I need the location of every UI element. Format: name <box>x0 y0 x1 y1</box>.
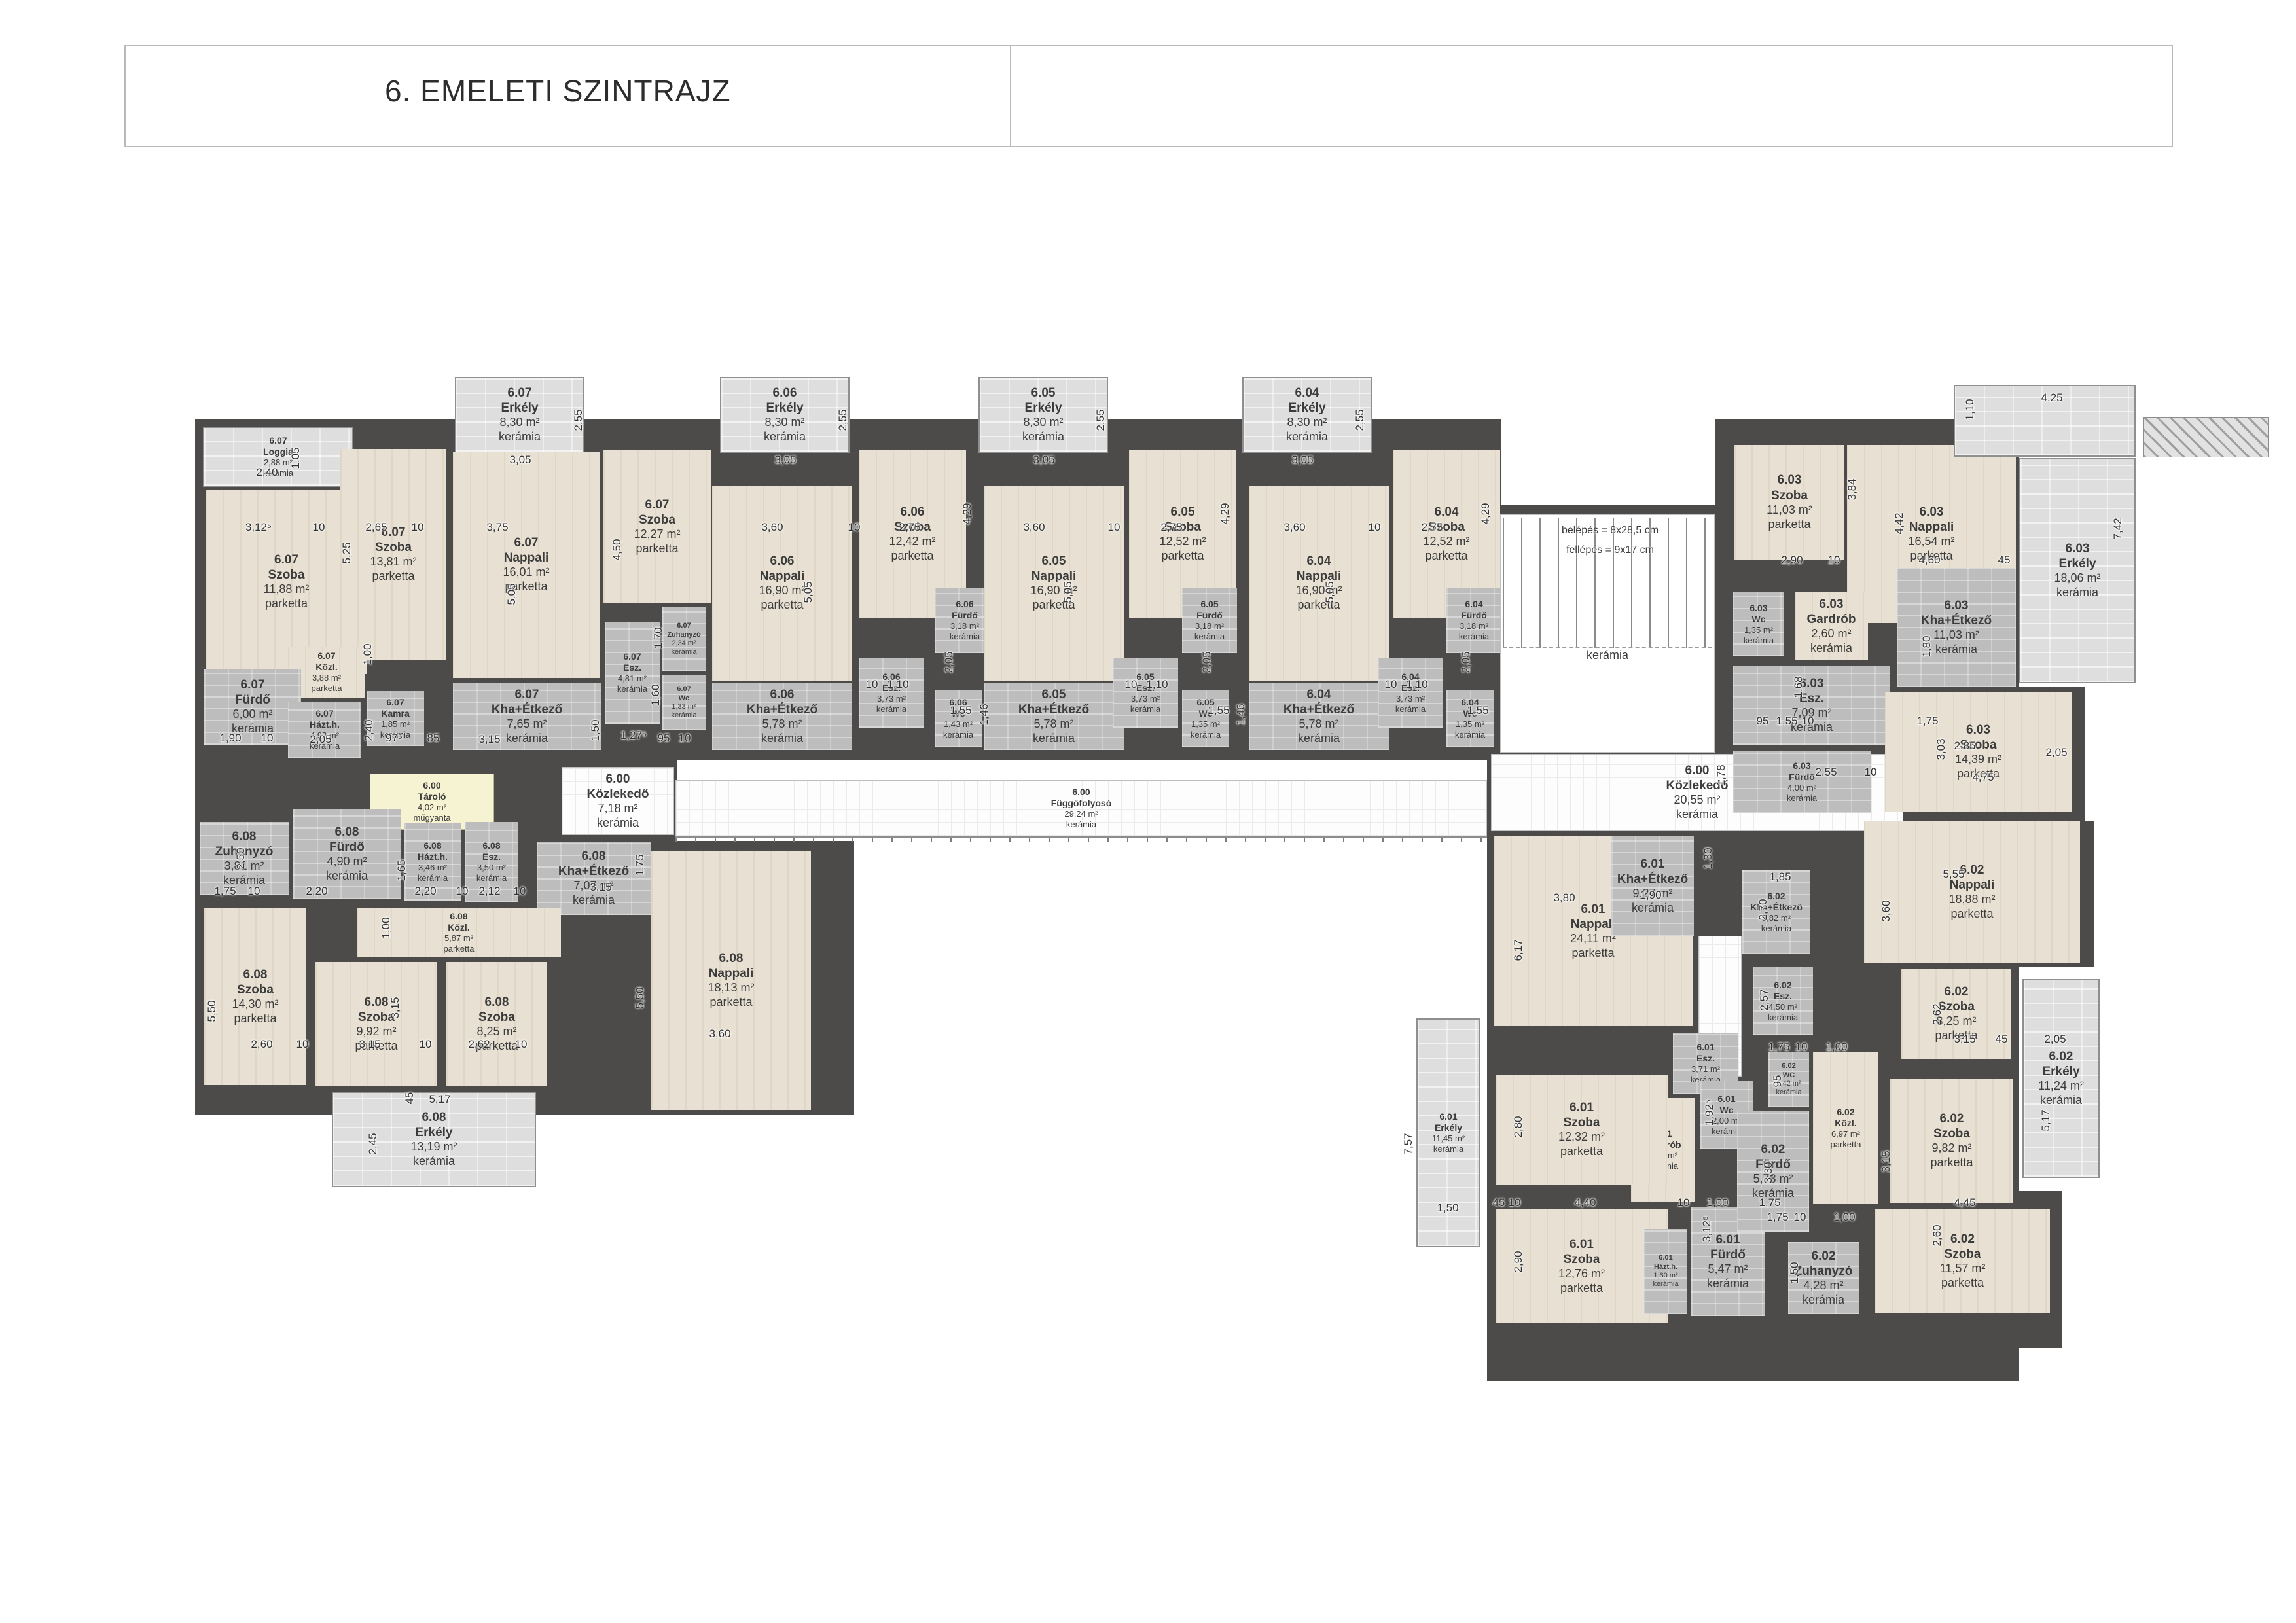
dim-label: 2,05 <box>942 651 956 673</box>
room-label-n: Kamra <box>381 708 410 719</box>
room-label-u: 6.08 <box>243 967 268 982</box>
dim-label: 10 <box>1865 766 1877 779</box>
dim-label: 4,42 <box>1893 512 1906 534</box>
room-label-a: 5,78 m² <box>762 717 802 732</box>
dim-label: 1,92⁵ <box>1703 1099 1716 1126</box>
room-6.04-wc: 6.04Wc1,35 m²kerámia <box>1446 690 1494 747</box>
room-label-a: 16,54 m² <box>1908 535 1954 549</box>
room-label-f: kerámia <box>1455 730 1485 740</box>
room-label-u: 6.01 <box>1570 1237 1594 1252</box>
dim-label: 1,55 <box>1467 704 1488 717</box>
room-label-a: 3,73 m² <box>1396 694 1425 704</box>
room-label-n: Kha+Étkező <box>1921 613 1992 628</box>
dim-label: 1,10 <box>887 678 908 691</box>
room-label-n: WC <box>1783 1071 1795 1080</box>
room-6.07-loggia: 6.07Loggia2,88 m²kerámia <box>203 427 353 487</box>
room-label-n: Tároló <box>418 791 446 802</box>
dim-label: 7,57 <box>1402 1133 1415 1154</box>
room-label-f: kerámia <box>671 711 696 720</box>
room-6.03-erk-ly: 6.03Erkély18,06 m²kerámia <box>2019 458 2136 683</box>
room-label-a: 5,78 m² <box>1299 717 1338 732</box>
room-6.07-kha+-tkez-: 6.07Kha+Étkező7,65 m²kerámia <box>453 683 601 750</box>
room-label-a: 12,52 m² <box>1159 535 1206 549</box>
dim-label: 10 <box>1677 1196 1690 1209</box>
room-6.07-nappali: 6.07Nappali16,01 m²parketta <box>453 452 600 678</box>
room-label-n: Fürdő <box>329 840 365 855</box>
dim-label: 10 <box>296 1038 309 1051</box>
room-label-n: Közl. <box>315 662 337 673</box>
room-label-a: 7,65 m² <box>507 717 547 732</box>
room-label-u: 6.08 <box>365 995 389 1010</box>
dim-label: 2,55 <box>1815 766 1837 779</box>
room-label-f: kerámia <box>761 732 803 746</box>
dim-label: 10 <box>1802 715 1814 728</box>
dim-label: 1,50 <box>589 719 602 741</box>
room-label-f: kerámia <box>418 873 448 883</box>
dim-label: 10 <box>514 885 526 898</box>
dim-label: 1,90 <box>219 732 241 745</box>
dim-label: 2,05 <box>1200 651 1213 673</box>
room-label-a: 8,25 m² <box>476 1025 516 1039</box>
room-6.00-f-gg-folyos-: 6.00Függőfolyosó29,24 m²kerámia <box>675 780 1487 836</box>
room-label-a: 2,60 m² <box>1811 627 1851 641</box>
room-6.08-nappali: 6.08Nappali18,13 m²parketta <box>651 851 811 1110</box>
dim-label: 10 <box>412 521 424 534</box>
room-label-n: Közlekedő <box>586 787 649 802</box>
room-label-f: kerámia <box>943 730 973 740</box>
room-label-a: 1,35 m² <box>1191 719 1220 730</box>
dim-label: 10 <box>1795 1041 1808 1054</box>
room-label-a: 8,30 m² <box>1287 416 1327 430</box>
room-label-a: 29,24 m² <box>1064 809 1098 819</box>
stair-entry-note: belépés = 8x28,5 cm <box>1511 525 1710 537</box>
room-6.04-kha+-tkez-: 6.04Kha+Étkező5,78 m²kerámia <box>1249 683 1389 750</box>
dim-label: 1,70 <box>652 627 665 649</box>
room-label-u: 6.01 <box>1570 1100 1594 1115</box>
dim-label: 2,60 <box>1931 1224 1944 1246</box>
dim-label: 3,60 <box>1283 521 1305 534</box>
room-6.05-kha+-tkez-: 6.05Kha+Étkező5,78 m²kerámia <box>984 683 1124 750</box>
dim-label: 2,12 <box>478 885 500 898</box>
room-label-u: 6.08 <box>719 951 744 966</box>
room-6.03-szoba: 6.03Szoba14,39 m²parketta <box>1885 692 2072 811</box>
dim-label: 4,75 <box>1972 771 1994 784</box>
room-label-f: kerámia <box>1298 732 1340 746</box>
dim-label: 45 <box>1996 1033 2008 1046</box>
dim-label: 2,55 <box>836 409 850 431</box>
dim-label: 1,00 <box>361 643 374 665</box>
room-label-a: 1,35 m² <box>1744 625 1773 635</box>
dim-label: 1,46 <box>978 704 991 725</box>
room-label-a: 1,33 m² <box>672 703 696 711</box>
dim-label: 1,78 <box>1715 764 1728 786</box>
room-label-f: kerámia <box>499 430 541 444</box>
dim-label: 4,29 <box>1219 503 1232 524</box>
room-6.05-erk-ly: 6.05Erkély8,30 m²kerámia <box>978 377 1108 453</box>
room-label-f: kerámia <box>1653 1280 1678 1289</box>
room-label-u: 6.02 <box>1940 1111 1964 1126</box>
room-label-a: 13,19 m² <box>410 1140 457 1154</box>
room-label-u: 6.04 <box>1307 687 1331 702</box>
room-label-f: kerámia <box>1787 793 1817 804</box>
dim-label: 1,10 <box>1406 678 1427 691</box>
stair-rise-note: fellépés = 9x17 cm <box>1511 544 1710 556</box>
room-label-u: 6.07 <box>241 677 265 692</box>
room-6.04-nappali: 6.04Nappali16,90 m²parketta <box>1249 486 1389 681</box>
dim-label: 5,05 <box>505 583 518 605</box>
dim-label: 3,03 <box>1935 738 1948 760</box>
room-label-n: Kha+Étkező <box>1018 702 1089 717</box>
floor-plan-canvas: 6. EMELETI SZINTRAJZ 6.07Loggia2,88 m²ke… <box>0 0 2296 1623</box>
room-label-n: Erkély <box>2042 1064 2079 1079</box>
room-label-u: 6.05 <box>1042 687 1066 702</box>
room-label-f: parketta <box>1930 1156 1973 1170</box>
dim-label: 1,75 <box>214 885 236 898</box>
room-label-a: 3,18 m² <box>950 621 979 632</box>
room-label-f: parketta <box>1571 946 1614 961</box>
room-label-u: 6.07 <box>645 497 670 512</box>
room-label-a: 3,18 m² <box>1195 621 1224 632</box>
room-label-f: kerámia <box>1803 1293 1844 1308</box>
room-label-a: 12,52 m² <box>1423 535 1469 549</box>
room-label-f: parketta <box>891 549 933 563</box>
header-bottom-line <box>124 146 2172 147</box>
room-label-f: parketta <box>636 542 678 556</box>
room-6.05-f-rd-: 6.05Fürdő3,18 m²kerámia <box>1182 588 1237 653</box>
dim-label: 2,62 <box>468 1038 490 1051</box>
dim-label: 4,60 <box>1918 554 1940 567</box>
header-left-line <box>124 45 126 147</box>
dim-label: 10 <box>1509 1196 1521 1209</box>
room-6.02-szoba: 6.02Szoba9,82 m²parketta <box>1890 1079 2013 1203</box>
room-label-u: 6.01 <box>1439 1111 1457 1122</box>
room-6.01-kha+-tkez-: 6.01Kha+Étkező9,27 m²kerámia <box>1611 836 1694 936</box>
dim-label: 3,80 <box>1553 891 1575 904</box>
room-label-u: 6.07 <box>515 687 539 702</box>
room-label-f: parketta <box>1941 1276 1984 1291</box>
dim-label: 45 <box>403 1092 416 1105</box>
room-label-n: Erkély <box>1435 1122 1462 1133</box>
dim-label: 1,10 <box>1146 678 1168 691</box>
room-label-a: 3,73 m² <box>1131 694 1160 704</box>
room-label-a: 8,30 m² <box>499 416 539 430</box>
room-label-u: 6.07 <box>514 535 539 550</box>
room-label-n: Erkély <box>415 1125 452 1140</box>
room-6.08-szoba: 6.08Szoba9,92 m²parketta <box>315 962 437 1086</box>
room-label-u: 6.08 <box>450 911 467 922</box>
dim-label: 2,75 <box>899 521 920 534</box>
dim-label: 1,75 <box>1767 1211 1788 1224</box>
dim-label: 1,46 <box>1234 704 1247 725</box>
room-label-n: Nappali <box>1571 917 1616 932</box>
dim-label: 10 <box>248 885 260 898</box>
room-label-n: Nappali <box>760 569 805 584</box>
room-label-n: Függőfolyosó <box>1051 798 1112 809</box>
room-label-u: 6.02 <box>1774 980 1791 991</box>
dim-label: 10 <box>420 1038 432 1051</box>
room-label-a: 5,87 m² <box>444 933 473 944</box>
room-label-f: parketta <box>265 597 308 611</box>
dim-label: 5,05 <box>1323 581 1336 603</box>
room-label-n: Gardrób <box>1807 612 1856 627</box>
room-label-f: kerámia <box>1761 923 1791 934</box>
room-6.03-esz.: 6.03Esz.7,09 m²kerámia <box>1733 666 1890 745</box>
room-label-f: kerámia <box>2040 1094 2082 1108</box>
dim-label: 10 <box>848 521 861 534</box>
room-label-a: 2,34 m² <box>672 639 696 648</box>
dim-label: 3,05 <box>774 454 796 467</box>
room-label-f: kerámia <box>1033 732 1075 746</box>
dim-label: 3,15 <box>359 1038 380 1051</box>
room-label-a: 18,13 m² <box>708 981 754 995</box>
room-label-n: Kha+Étkező <box>1283 702 1354 717</box>
room-label-a: 3,73 m² <box>877 694 906 704</box>
room-label-u: 6.01 <box>1659 1254 1672 1262</box>
room-label-f: kerámia <box>1286 430 1328 444</box>
room-label-a: 16,01 m² <box>503 565 549 580</box>
room-label-a: 9,92 m² <box>356 1025 396 1039</box>
room-6.07-h-zt.h.: 6.07Házt.h.4,92 m²kerámia <box>288 702 361 758</box>
dim-label: 4,25 <box>2041 391 2062 404</box>
dim-label: 2,40 <box>256 466 278 479</box>
room-label-n: Erkély <box>1024 401 1062 416</box>
room-label-a: 4,28 m² <box>1803 1279 1843 1293</box>
room-label-a: 11,03 m² <box>1767 503 1812 518</box>
room-label-a: 3,88 m² <box>312 673 341 683</box>
room-label-n: Fürdő <box>1710 1247 1746 1262</box>
dim-label: 10 <box>515 1038 528 1051</box>
room-label-a: 7,18 m² <box>598 802 637 816</box>
dim-label: 1,65 <box>395 859 408 881</box>
dim-label: 1,85 <box>1769 870 1791 883</box>
room-label-f: kerámia <box>764 430 806 444</box>
dim-label: 2,55 <box>572 409 585 431</box>
room-label-u: 6.03 <box>1778 473 1802 488</box>
room-6.07-erk-ly: 6.07Erkély8,30 m²kerámia <box>455 377 584 453</box>
room-label-u: 6.01 <box>1717 1094 1735 1105</box>
room-label-u: 6.08 <box>232 829 257 844</box>
room-label-n: Fürdő <box>1461 610 1487 621</box>
room-label-n: Fürdő <box>235 692 270 707</box>
dim-label: 1,75 <box>1768 1041 1789 1054</box>
dim-label: 2,45 <box>367 1133 380 1154</box>
dim-label: 1,90 <box>1640 889 1661 902</box>
room-label-u: 6.02 <box>1945 984 1969 999</box>
room-label-f: kerámia <box>1433 1144 1463 1154</box>
dim-label: 95 <box>1757 715 1769 728</box>
room-label-u: 6.06 <box>770 554 795 569</box>
room-label-u: 6.01 <box>1581 902 1605 917</box>
dim-label: 2,40 <box>363 719 376 741</box>
dim-label: 3,15 <box>1880 1150 1893 1172</box>
room-label-n: Szoba <box>237 982 274 997</box>
room-label-f: parketta <box>1560 1145 1603 1159</box>
room-label-n: Nappali <box>709 966 754 981</box>
room-label-f: kerámia <box>1707 1277 1749 1291</box>
room-label-f: parketta <box>709 995 752 1010</box>
room-6.00-k-zleked-: 6.00Közlekedő7,18 m²kerámia <box>562 767 674 835</box>
room-label-n: Közl. <box>1835 1118 1856 1129</box>
room-label-n: Esz. <box>623 662 641 673</box>
room-6.08-szoba: 6.08Szoba14,30 m²parketta <box>204 908 306 1085</box>
room-label-a: 8,30 m² <box>1023 416 1063 430</box>
room-label-a: 1,35 m² <box>1456 719 1484 730</box>
room-label-u: 6.04 <box>1465 599 1482 610</box>
room-label-u: 6.07 <box>269 435 287 446</box>
room-label-u: 6.02 <box>1782 1062 1795 1071</box>
room-label-u: 6.07 <box>508 385 532 401</box>
room-label-f: parketta <box>1161 549 1204 563</box>
room-label-a: 11,88 m² <box>264 582 310 597</box>
dim-label: 2,05 <box>310 733 331 746</box>
dim-label: 45 <box>1998 554 2011 567</box>
dim-label: 10 <box>313 521 325 534</box>
dim-label: 1,68 <box>1792 676 1805 698</box>
room-label-f: kerámia <box>1130 704 1160 715</box>
room-label-n: Kha+Étkező <box>492 702 562 717</box>
dim-label: 2,57 <box>1758 989 1771 1010</box>
dim-label: 1,00 <box>1833 1211 1855 1224</box>
room-6.07-f-rd-: 6.07Fürdő6,00 m²kerámia <box>204 669 301 745</box>
room-label-u: 6.03 <box>1945 598 1969 613</box>
room-label-n: Fürdő <box>1789 772 1815 783</box>
room-label-n: Szoba <box>1564 1115 1600 1130</box>
room-6.04-f-rd-: 6.04Fürdő3,18 m²kerámia <box>1446 588 1501 653</box>
dim-label: 3,30 <box>1762 1162 1775 1183</box>
dim-label: 1,55 <box>1208 704 1229 717</box>
room-label-n: Szoba <box>1771 488 1808 503</box>
room-label-f: parketta <box>1950 907 1993 921</box>
room-6.07-szoba: 6.07Szoba12,27 m²parketta <box>603 450 711 603</box>
room-label-f: kerámia <box>1022 430 1064 444</box>
room-label-f: parketta <box>1831 1139 1861 1150</box>
room-label-n: Kha+Étkező <box>747 702 817 717</box>
room-label-n: Szoba <box>268 567 305 582</box>
room-label-f: kerámia <box>1587 649 1628 663</box>
room-label-u: 6.04 <box>1307 554 1331 569</box>
room-6.07-wc: 6.07Wc1,33 m²kerámia <box>662 675 706 730</box>
room-label-f: parketta <box>444 944 475 954</box>
room-label-f: kerámia <box>1935 643 1977 657</box>
roof-hatch <box>2143 417 2269 457</box>
room-label-a: 4,02 m² <box>418 802 446 813</box>
dim-label: 3,12⁵ <box>245 521 272 534</box>
room-label-u: 6.07 <box>315 708 333 719</box>
dim-label: 5,50 <box>206 1000 219 1022</box>
room-label-a: 4,50 m² <box>1768 1002 1797 1012</box>
room-6.06-erk-ly: 6.06Erkély8,30 m²kerámia <box>720 377 850 453</box>
dim-label: 1,75 <box>1759 1196 1780 1209</box>
dim-label: 10 <box>866 678 878 691</box>
room-label-f: kerámia <box>1744 635 1774 646</box>
dim-label: 1,10 <box>1964 399 1977 420</box>
room-label-f: kerámia <box>1676 808 1718 822</box>
room-6.03-f-rd-: 6.03Fürdő4,00 m²kerámia <box>1733 751 1871 813</box>
room-label-u: 6.01 <box>1696 1042 1714 1053</box>
dim-label: 1,05 <box>289 447 302 469</box>
room-label-u: 6.03 <box>1793 760 1810 772</box>
dim-label: 4,40 <box>1574 1196 1596 1209</box>
room-label-a: 24,11 m² <box>1570 932 1616 946</box>
room-label-u: 6.07 <box>274 552 298 567</box>
room-label-n: Zuhanyzó <box>1795 1264 1853 1279</box>
room-label-a: 20,55 m² <box>1674 793 1720 808</box>
room-label-u: 6.07 <box>317 651 335 662</box>
room-label-n: Házt.h. <box>418 851 448 863</box>
dim-label: 1,50 <box>1788 1262 1801 1283</box>
room-label-u: 6.02 <box>1812 1249 1836 1264</box>
dim-label: 7,42 <box>2111 518 2125 539</box>
room-label-a: 12,27 m² <box>634 527 680 542</box>
room-label-f: kerámia <box>876 704 906 715</box>
dim-label: 45 <box>1493 1196 1505 1209</box>
dim-label: 2,90 <box>1781 554 1803 567</box>
room-label-u: 6.06 <box>773 385 797 401</box>
room-label-u: 6.02 <box>1767 891 1785 902</box>
dim-label: 10 <box>1828 554 1840 567</box>
room-label-f: kerámia <box>1776 1088 1801 1097</box>
dim-label: 2,50 <box>234 847 247 869</box>
dim-label: 97⁵ <box>386 732 403 745</box>
room-label-n: Szoba <box>1933 1126 1970 1141</box>
room-label-n: Házt.h. <box>310 719 340 730</box>
room-label-u: 6.06 <box>901 505 925 520</box>
room-label-a: 3,50 m² <box>477 863 506 873</box>
room-6.07-zuhanyz-: 6.07Zuhanyzó2,34 m²kerámia <box>662 607 706 671</box>
room-label-f: kerámia <box>1194 632 1225 642</box>
room-label-u: 6.08 <box>482 840 500 851</box>
room-label-a: 11,45 m² <box>1432 1133 1465 1144</box>
dim-label: 5,50 <box>634 987 647 1008</box>
dim-label: 10 <box>1794 1211 1806 1224</box>
room-label-u: 6.00 <box>1072 787 1090 798</box>
room-label-n: Erkély <box>766 401 803 416</box>
room-label-n: Wc <box>1752 614 1766 625</box>
room-label-a: 8,30 m² <box>764 416 804 430</box>
dim-label: 2,65 <box>365 521 387 534</box>
stair-treads <box>1503 518 1712 648</box>
room-label-f: kerámia <box>1191 730 1221 740</box>
room-label-a: 5,47 m² <box>1708 1262 1748 1277</box>
dim-label: 3,60 <box>709 1027 730 1041</box>
room-label-u: 6.00 <box>1685 763 1710 778</box>
dim-label: 2,70 <box>1757 899 1770 920</box>
room-6.03-wc: 6.03Wc1,35 m²kerámia <box>1733 592 1784 656</box>
room-label-f: műgyanta <box>413 813 450 823</box>
room-label-a: 13,81 m² <box>370 555 416 569</box>
dim-label: 5,05 <box>1062 581 1075 603</box>
dim-label: 4,45 <box>1954 1196 1975 1209</box>
dim-label: 2,55 <box>1354 409 1367 431</box>
dim-label: 3,05 <box>509 454 531 467</box>
room-label-a: 3,71 m² <box>1691 1064 1720 1075</box>
room-label-a: 4,00 m² <box>1787 783 1816 793</box>
room-label-u: 6.06 <box>956 599 973 610</box>
room-6.06-kha+-tkez-: 6.06Kha+Étkező5,78 m²kerámia <box>712 683 852 750</box>
dim-label: 5,05 <box>802 581 815 603</box>
room-label-n: Házt.h. <box>1654 1263 1677 1272</box>
dim-label: 1,60 <box>649 684 662 705</box>
room-label-n: Nappali <box>1909 520 1954 535</box>
dim-label: 2,75 <box>1160 521 1182 534</box>
room-label-n: Kha+Étkező <box>558 864 629 879</box>
dim-label: 5,25 <box>340 542 353 563</box>
room-label-u: 6.08 <box>423 840 441 851</box>
room-label-a: 11,24 m² <box>2038 1079 2084 1094</box>
room-label-u: 6.07 <box>386 697 404 708</box>
room-6.02-szoba: 6.02Szoba11,57 m²parketta <box>1875 1209 2050 1313</box>
room-label-f: kerámia <box>326 869 368 883</box>
